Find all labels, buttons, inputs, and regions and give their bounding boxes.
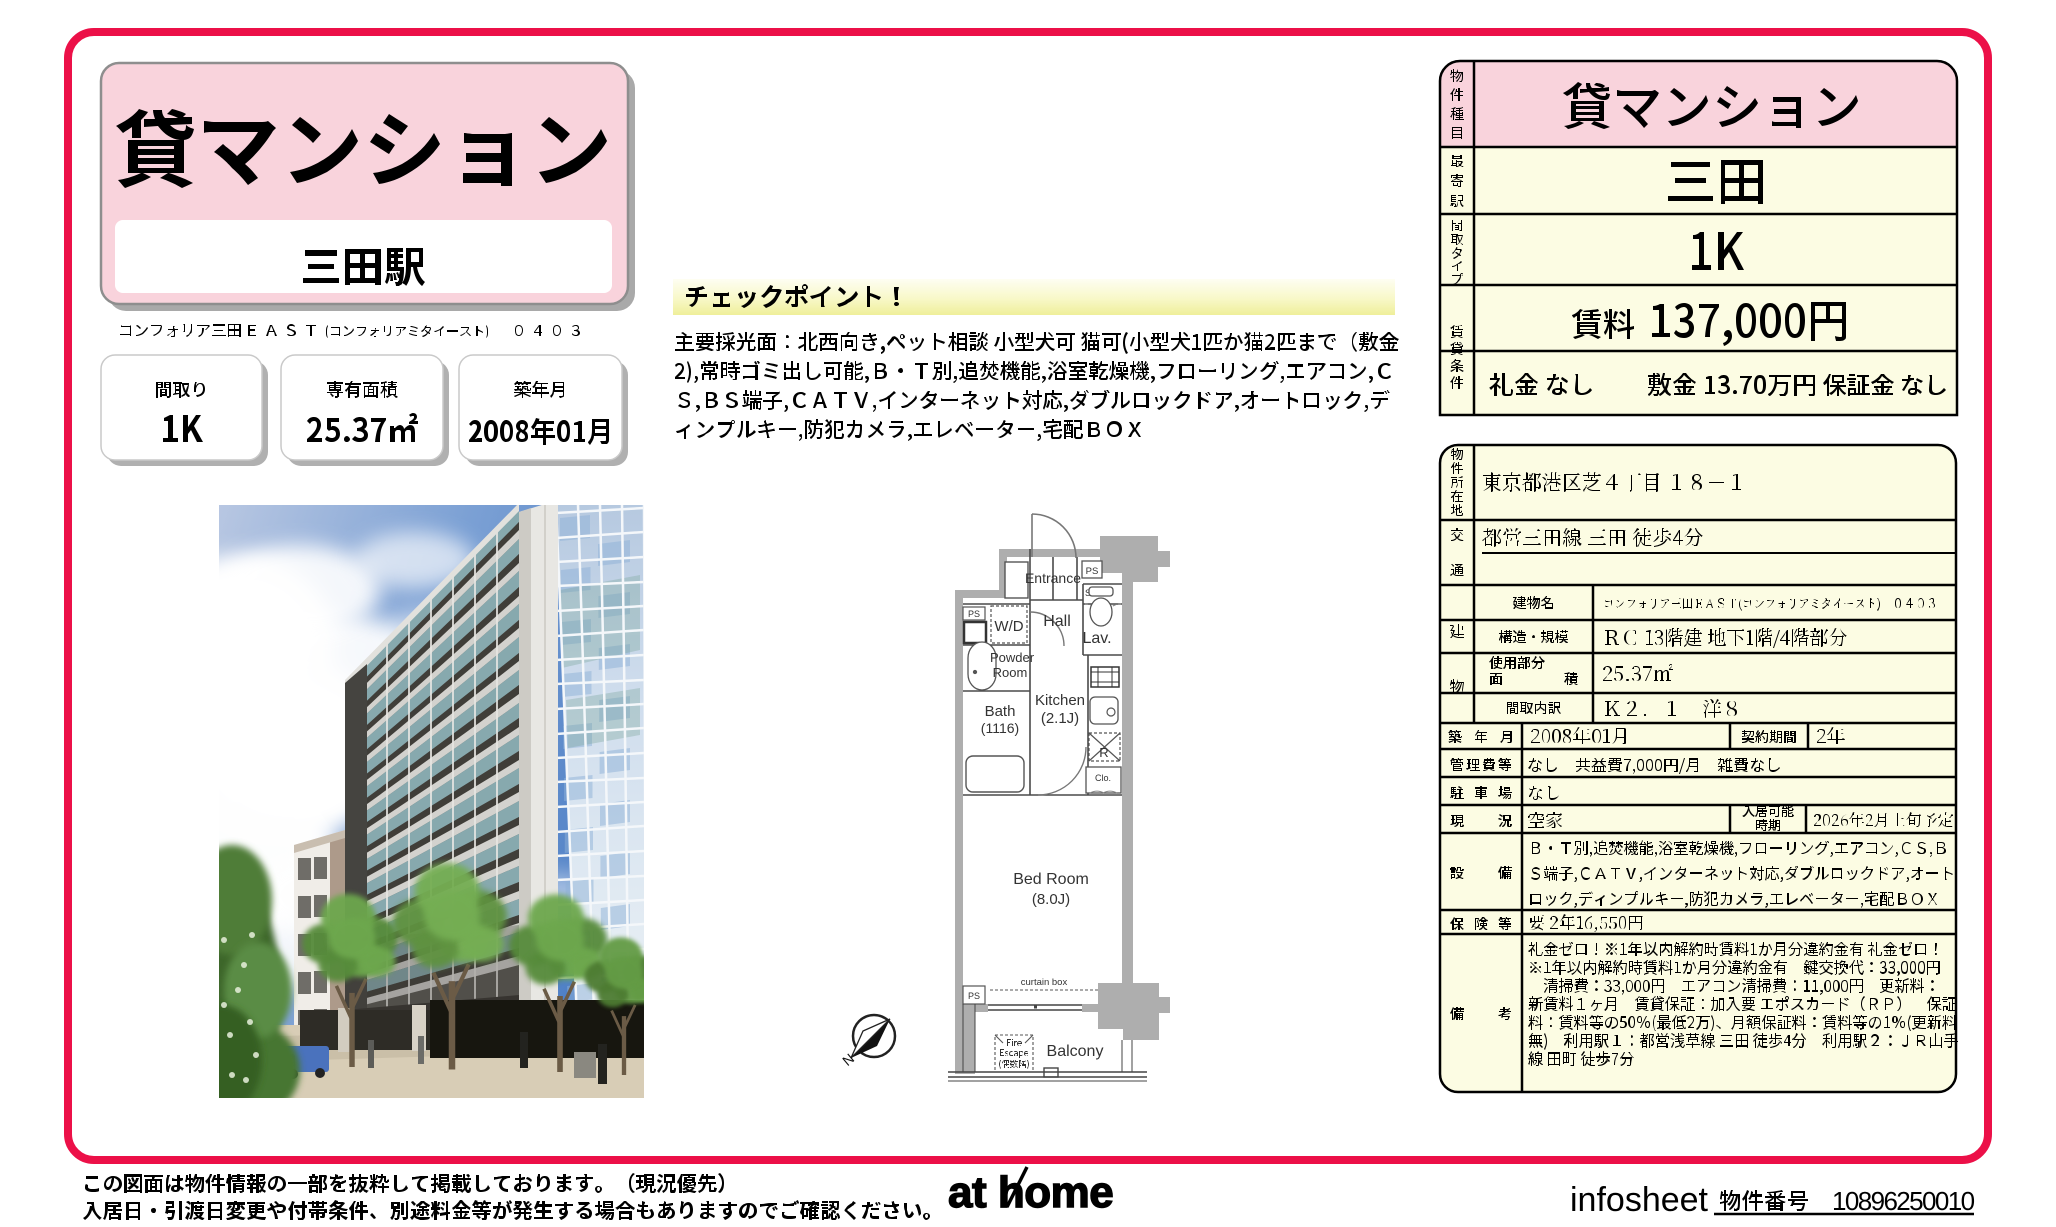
- svg-text:PS: PS: [968, 991, 980, 1001]
- svg-text:(1116): (1116): [981, 720, 1019, 736]
- svg-text:Balcony: Balcony: [1047, 1043, 1104, 1060]
- svg-text:at home: at home: [948, 1168, 1113, 1217]
- svg-text:R: R: [1099, 745, 1108, 760]
- svg-text:(8.0J): (8.0J): [1032, 891, 1070, 908]
- svg-text:Room: Room: [993, 665, 1028, 680]
- svg-text:Entrance: Entrance: [1025, 570, 1081, 586]
- svg-text:(2.1J): (2.1J): [1041, 710, 1079, 727]
- svg-text:Kitchen: Kitchen: [1035, 692, 1085, 709]
- svg-text:W/D: W/D: [994, 618, 1023, 635]
- svg-text:Clo.: Clo.: [1095, 773, 1111, 783]
- svg-text:Powder: Powder: [990, 650, 1035, 665]
- svg-text:Lav.: Lav.: [1082, 630, 1111, 647]
- svg-text:Bed Room: Bed Room: [1013, 871, 1089, 888]
- svg-text:PS: PS: [968, 609, 980, 619]
- svg-text:PS: PS: [1086, 566, 1099, 577]
- svg-text:infosheet: infosheet: [1570, 1181, 1709, 1219]
- svg-text:Hall: Hall: [1043, 613, 1071, 630]
- svg-text:Bath: Bath: [985, 703, 1016, 720]
- svg-text:10896250010: 10896250010: [1832, 1186, 1975, 1216]
- svg-text:curtain box: curtain box: [1021, 977, 1068, 988]
